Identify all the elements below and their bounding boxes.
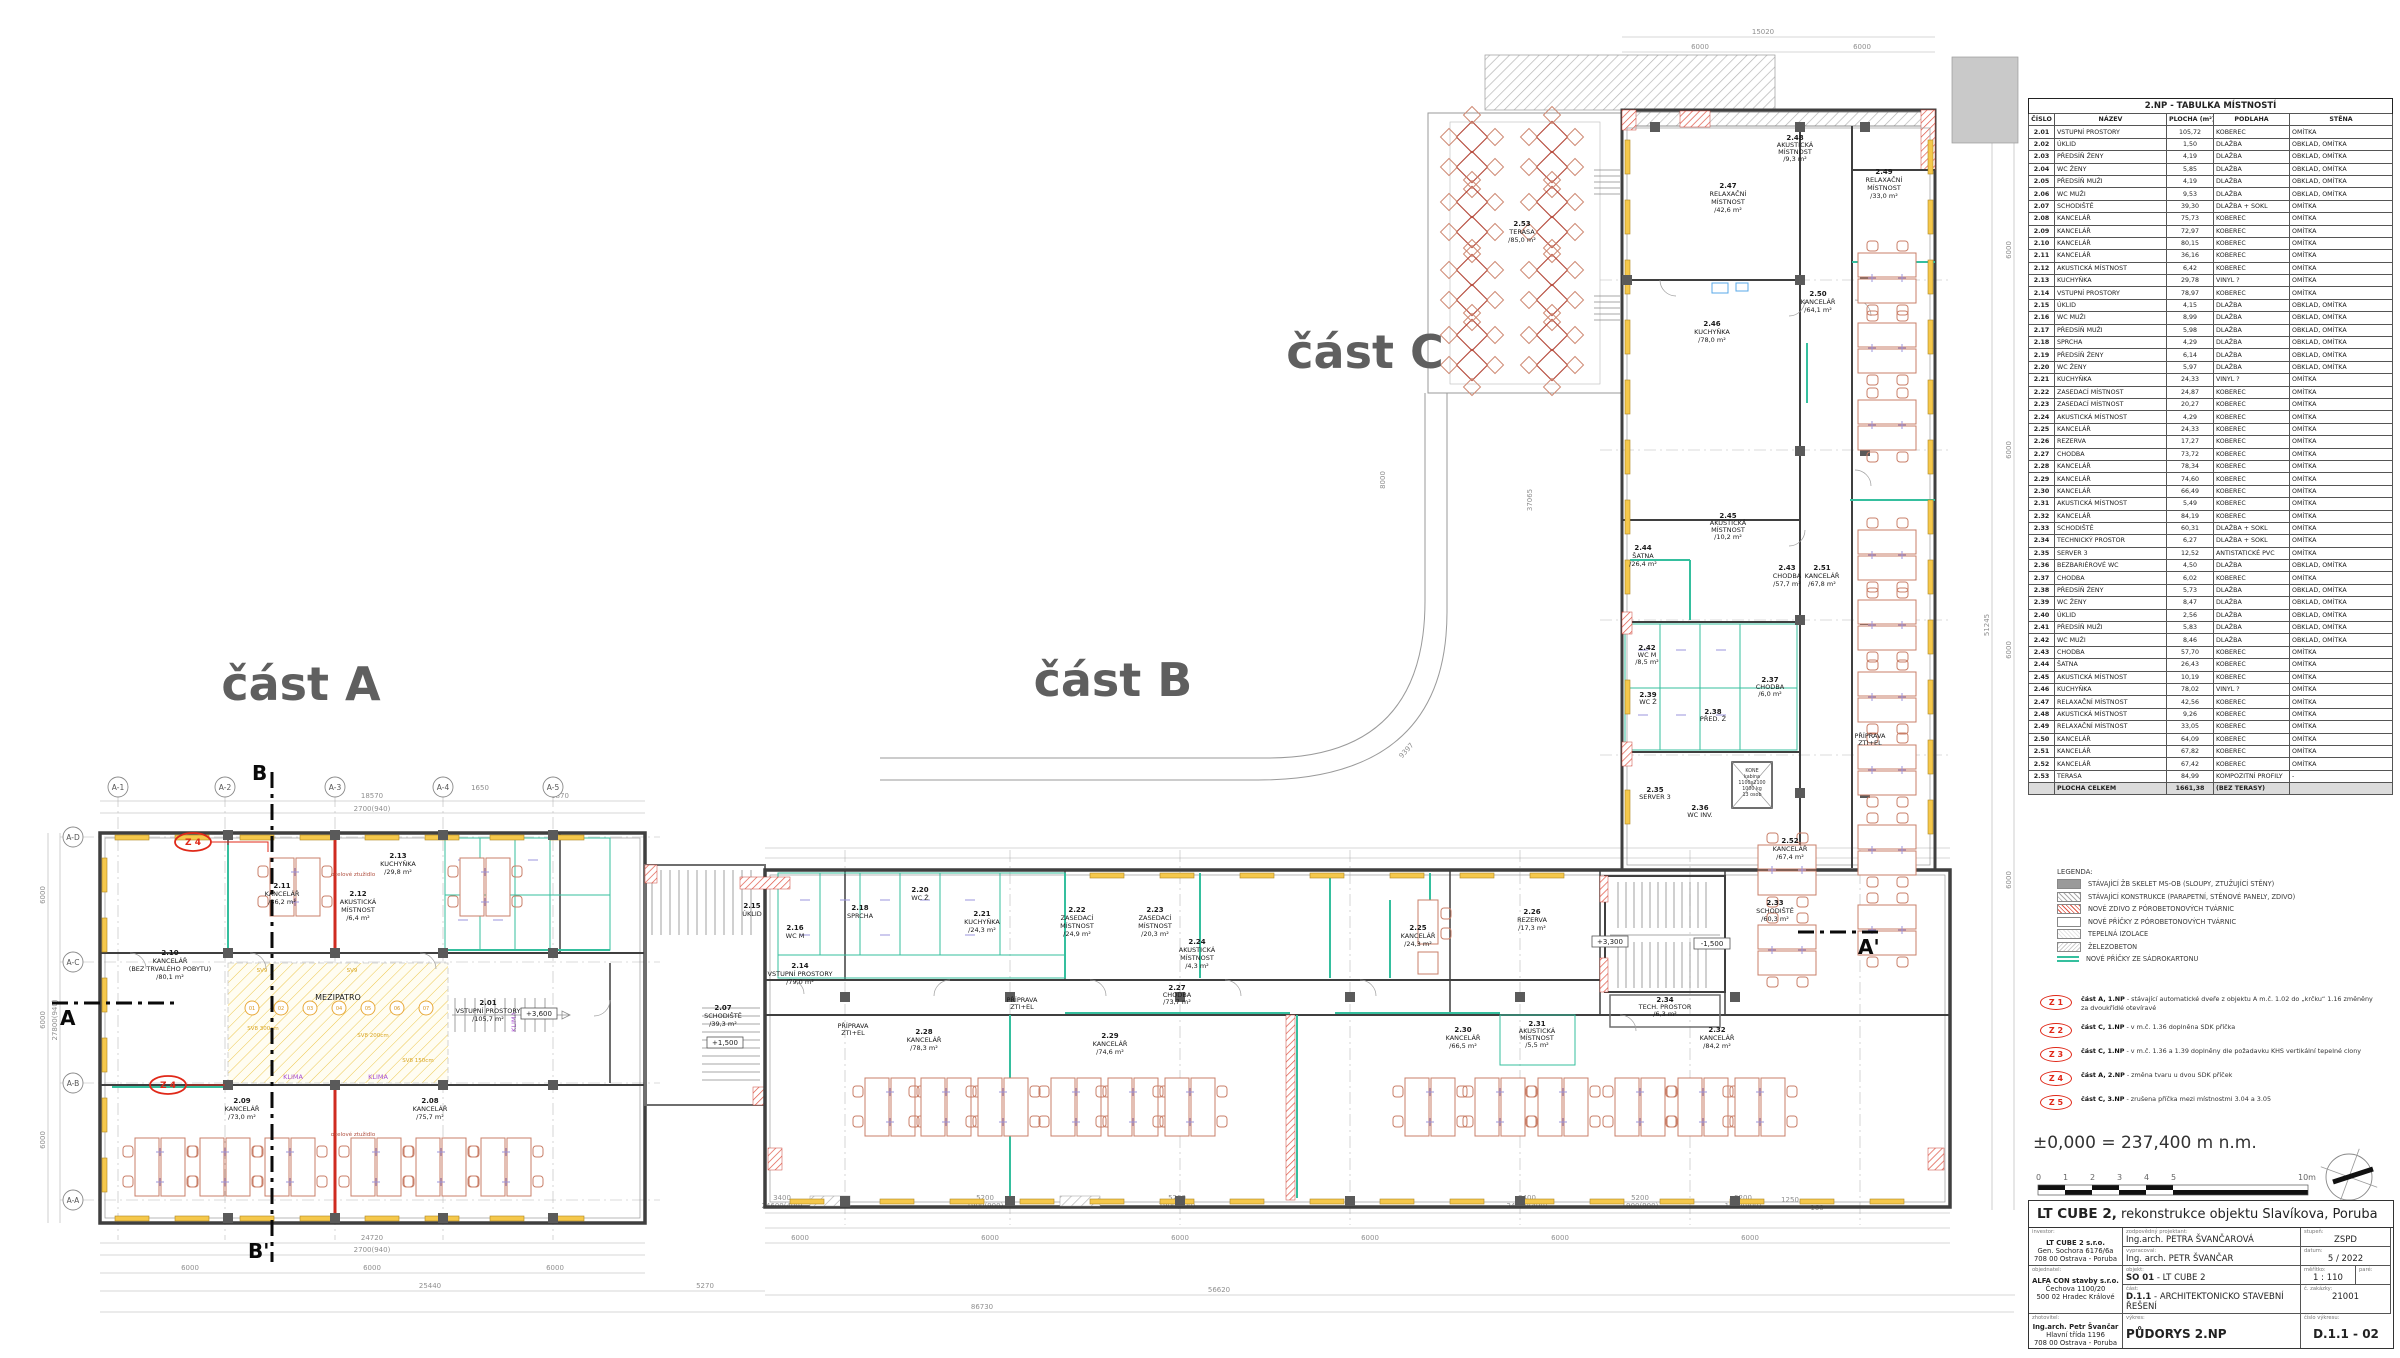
- change-note: Z 3 část C, 1.NP - v m.č. 1.36 a 1.39 do…: [2040, 1047, 2380, 1062]
- order-cell: č. zakázky: 21001: [2301, 1285, 2391, 1314]
- svg-text:A-1: A-1: [112, 783, 125, 792]
- table-row: 2.52KANCELÁŘ67,42KOBERECOMÍTKA: [2029, 758, 2393, 770]
- svg-text:2.48AKUSTICKÁMÍSTNOST/9,3 m²: 2.48AKUSTICKÁMÍSTNOST/9,3 m²: [1777, 134, 1814, 163]
- table-row: 2.11KANCELÁŘ36,16KOBERECOMÍTKA: [2029, 250, 2393, 262]
- svg-text:2.09KANCELÁŘ/73,0 m²: 2.09KANCELÁŘ/73,0 m²: [225, 1097, 260, 1121]
- svg-text:SV8 200cm: SV8 200cm: [357, 1033, 388, 1039]
- part-c-label: část C: [1286, 325, 1443, 379]
- svg-text:2.29KANCELÁŘ/74,6 m²: 2.29KANCELÁŘ/74,6 m²: [1093, 1032, 1128, 1056]
- part-b-label: část B: [1034, 653, 1193, 707]
- table-row: 2.37CHODBA6,02KOBERECOMÍTKA: [2029, 572, 2393, 584]
- drawing-number-cell: číslo výkresu: D.1.1 - 02: [2301, 1314, 2391, 1348]
- investor-cell: investor: LT CUBE 2 s.r.o. Gen. Sochora …: [2029, 1228, 2123, 1266]
- svg-text:MEZIPATRO: MEZIPATRO: [315, 993, 361, 1002]
- legend-swatch-existing: [2057, 892, 2081, 902]
- svg-text:6000: 6000: [1691, 43, 1709, 51]
- svg-text:A-B: A-B: [67, 1079, 80, 1088]
- svg-text:0: 0: [2036, 1173, 2041, 1182]
- svg-text:PŘÍPRAVAZTI+EL: PŘÍPRAVAZTI+EL: [1854, 731, 1886, 747]
- svg-text:51245: 51245: [1983, 614, 1991, 636]
- svg-text:-1,500: -1,500: [1701, 940, 1724, 948]
- svg-text:ocelové ztužidlo: ocelové ztužidlo: [331, 871, 376, 878]
- title-block: LT CUBE 2, rekonstrukce objektu Slavíkov…: [2028, 1200, 2394, 1349]
- svg-text:05: 05: [365, 1006, 371, 1012]
- table-row: 2.24AKUSTICKÁ MÍSTNOST4,29KOBERECOMÍTKA: [2029, 411, 2393, 423]
- svg-text:8000: 8000: [1379, 471, 1387, 489]
- svg-text:KLIMA: KLIMA: [368, 1073, 388, 1081]
- legend: LEGENDA: STÁVAJÍCÍ ŽB SKELET MS-OB (SLOU…: [2057, 868, 2387, 965]
- existing-building-block: [1952, 57, 2018, 143]
- svg-text:2.08KANCELÁŘ/75,7 m²: 2.08KANCELÁŘ/75,7 m²: [413, 1097, 448, 1121]
- table-row: 2.31AKUSTICKÁ MÍSTNOST5,49KOBERECOMÍTKA: [2029, 498, 2393, 510]
- table-row: 2.26REZERVA17,27KOBERECOMÍTKA: [2029, 436, 2393, 448]
- svg-text:2.24AKUSTICKÁMÍSTNOST/4,3 m²: 2.24AKUSTICKÁMÍSTNOST/4,3 m²: [1179, 938, 1216, 970]
- table-row: 2.12AKUSTICKÁ MÍSTNOST6,42KOBERECOMÍTKA: [2029, 262, 2393, 274]
- room-table: 2.NP - TABULKA MÍSTNOSTÍ ČÍSLO NÁZEV PLO…: [2028, 98, 2392, 795]
- table-row: 2.39WC ŽENY8,47DLAŽBAOBKLAD, OMÍTKA: [2029, 597, 2393, 609]
- table-row: 2.14VSTUPNÍ PROSTORY78,97KOBERECOMÍTKA: [2029, 287, 2393, 299]
- svg-text:6000: 6000: [181, 1264, 199, 1272]
- stage-cell: stupeň: ZSPD: [2301, 1228, 2391, 1247]
- staircase-2-33: [1600, 876, 1725, 992]
- svg-text:2.15ÚKLID: 2.15ÚKLID: [742, 902, 762, 918]
- part-a-label: část A: [221, 657, 381, 711]
- table-row: 2.15ÚKLID4,15DLAŽBAOBKLAD, OMÍTKA: [2029, 299, 2393, 311]
- svg-text:2.43CHODBA/57,7 m²: 2.43CHODBA/57,7 m²: [1773, 564, 1802, 588]
- svg-text:37065: 37065: [1526, 489, 1534, 511]
- table-row: 2.23ZASEDACÍ MÍSTNOST20,27KOBERECOMÍTKA: [2029, 398, 2393, 410]
- table-row: 2.29KANCELÁŘ74,60KOBERECOMÍTKA: [2029, 473, 2393, 485]
- elevation-note: ±0,000 = 237,400 m n.m.: [2033, 1133, 2257, 1153]
- svg-text:10m: 10m: [2298, 1173, 2316, 1182]
- table-row: 2.42WC MUŽI8,46DLAŽBAOBKLAD, OMÍTKA: [2029, 634, 2393, 646]
- table-row: 2.49RELAXAČNÍ MÍSTNOST33,05KOBERECOMÍTKA: [2029, 721, 2393, 733]
- legend-swatch-reinforced-concrete: [2057, 942, 2081, 952]
- legend-label: STÁVAJÍCÍ KONSTRUKCE (PARAPETNÍ, STĚNOVÉ…: [2088, 893, 2295, 901]
- svg-text:2.35SERVER 3: 2.35SERVER 3: [1639, 786, 1671, 801]
- table-row: 2.17PŘEDSÍŇ MUŽI5,98DLAŽBAOBKLAD, OMÍTKA: [2029, 324, 2393, 336]
- svg-text:A: A: [60, 1006, 76, 1030]
- legend-label: NOVÉ PŘÍČKY Z PÓROBETONOVÝCH TVÁRNIC: [2088, 918, 2236, 926]
- svg-text:6000: 6000: [2005, 441, 2013, 459]
- svg-text:6000: 6000: [1741, 1234, 1759, 1242]
- svg-text:2.12AKUSTICKÁMÍSTNOST/6,4 m²: 2.12AKUSTICKÁMÍSTNOST/6,4 m²: [340, 890, 377, 922]
- room-table-header: ČÍSLO NÁZEV PLOCHA (m²) PODLAHA STĚNA: [2029, 114, 2393, 126]
- svg-text:A-2: A-2: [219, 783, 232, 792]
- legend-label: NOVÉ ZDIVO Z PÓROBETONOVÝCH TVÁRNIC: [2088, 905, 2234, 913]
- svg-text:24720: 24720: [361, 1234, 383, 1242]
- svg-text:2.45AKUSTICKÁMÍSTNOST/10,2 m²: 2.45AKUSTICKÁMÍSTNOST/10,2 m²: [1710, 512, 1747, 541]
- change-note: Z 5 část C, 3.NP - zrušena příčka mezi m…: [2040, 1095, 2380, 1110]
- road-edge: [880, 393, 1447, 780]
- svg-text:6000: 6000: [1551, 1234, 1569, 1242]
- table-row: 2.19PŘEDSÍŇ ŽENY6,14DLAŽBAOBKLAD, OMÍTKA: [2029, 349, 2393, 361]
- new-masonry-pier: [1286, 1015, 1295, 1200]
- svg-text:+3,600: +3,600: [526, 1010, 552, 1018]
- table-row: 2.04WC ŽENY5,85DLAŽBAOBKLAD, OMÍTKA: [2029, 163, 2393, 175]
- svg-text:6000: 6000: [791, 1234, 809, 1242]
- svg-text:Z 4: Z 4: [160, 1081, 176, 1091]
- legend-label: NOVÉ PŘÍČKY ZE SÁDROKARTONU: [2086, 955, 2198, 963]
- scale-cell: měřítko: 1 : 110 paré:: [2301, 1266, 2391, 1285]
- svg-text:27800(940): 27800(940): [51, 999, 59, 1040]
- svg-text:07: 07: [423, 1006, 429, 1012]
- table-row: 2.45AKUSTICKÁ MÍSTNOST10,19KOBERECOMÍTKA: [2029, 671, 2393, 683]
- svg-text:+3,300: +3,300: [1597, 938, 1623, 946]
- svg-text:2.16WC M: 2.16WC M: [786, 924, 805, 940]
- table-row: 2.08KANCELÁŘ75,73KOBERECOMÍTKA: [2029, 213, 2393, 225]
- svg-text:SV9: SV9: [347, 968, 358, 974]
- svg-text:86730: 86730: [971, 1303, 993, 1311]
- legend-label: TEPELNÁ IZOLACE: [2088, 930, 2148, 938]
- svg-text:1100x2100: 1100x2100: [1738, 780, 1765, 786]
- table-row: 2.41PŘEDSÍŇ MUŽI5,83DLAŽBAOBKLAD, OMÍTKA: [2029, 622, 2393, 634]
- table-row: 2.30KANCELÁŘ66,49KOBERECOMÍTKA: [2029, 485, 2393, 497]
- svg-text:13 osob: 13 osob: [1742, 792, 1761, 798]
- table-row: 2.33SCHODIŠTĚ60,31DLAŽBA + SOKLOMÍTKA: [2029, 522, 2393, 534]
- svg-text:B: B: [252, 761, 267, 785]
- svg-text:PŘÍPRAVAZTI+EL: PŘÍPRAVAZTI+EL: [837, 1021, 869, 1037]
- scale-bar: 0 1 2 3 4 5 10m: [2036, 1173, 2316, 1195]
- svg-text:2.33SCHODIŠTĚ/60,3 m²: 2.33SCHODIŠTĚ/60,3 m²: [1756, 899, 1794, 923]
- svg-text:2.32KANCELÁŘ/84,2 m²: 2.32KANCELÁŘ/84,2 m²: [1700, 1026, 1735, 1050]
- svg-text:2.23ZASEDACÍMÍSTNOST/20,3 m²: 2.23ZASEDACÍMÍSTNOST/20,3 m²: [1138, 906, 1172, 938]
- table-row: 2.09KANCELÁŘ72,97KOBERECOMÍTKA: [2029, 225, 2393, 237]
- table-row: 2.07SCHODIŠTĚ39,30DLAŽBA + SOKLOMÍTKA: [2029, 200, 2393, 212]
- table-row: 2.05PŘEDSÍŇ MUŽI4,19DLAŽBAOBKLAD, OMÍTKA: [2029, 175, 2393, 187]
- change-bubble-z5: Z 5: [2040, 1095, 2072, 1110]
- existing-structure-hatch: [1485, 55, 1775, 110]
- elevator: KONE kabina 1100x2100 1000 kg 13 osob: [1732, 762, 1772, 808]
- svg-text:A-4: A-4: [437, 783, 450, 792]
- legend-label: ŽELEZOBETON: [2088, 943, 2137, 951]
- svg-text:1000 kg: 1000 kg: [1742, 786, 1762, 792]
- svg-text:2.49RELAXAČNÍMÍSTNOST/33,0 m²: 2.49RELAXAČNÍMÍSTNOST/33,0 m²: [1866, 168, 1903, 200]
- svg-text:04: 04: [336, 1006, 342, 1012]
- svg-text:A': A': [1858, 935, 1880, 959]
- svg-text:6000: 6000: [2005, 641, 2013, 659]
- table-row: 2.40ÚKLID2,56DLAŽBAOBKLAD, OMÍTKA: [2029, 609, 2393, 621]
- svg-text:A-A: A-A: [67, 1196, 81, 1205]
- table-row: 2.34TECHNICKÝ PROSTOR6,27DLAŽBA + SOKLOM…: [2029, 535, 2393, 547]
- svg-text:2.31AKUSTICKÁMÍSTNOST/5,5 m²: 2.31AKUSTICKÁMÍSTNOST/5,5 m²: [1519, 1020, 1556, 1049]
- svg-text:6000: 6000: [39, 886, 47, 904]
- svg-text:SV8 150cm: SV8 150cm: [402, 1058, 433, 1064]
- table-row: 2.01VSTUPNÍ PROSTORY105,72KOBERECOMÍTKA: [2029, 126, 2393, 138]
- svg-text:3400: 3400: [773, 1194, 791, 1202]
- svg-text:ocelové ztužidlo: ocelové ztužidlo: [331, 1131, 376, 1138]
- change-bubble-z2: Z 2: [2040, 1023, 2072, 1038]
- svg-text:2.38PŘED. Ž: 2.38PŘED. Ž: [1700, 708, 1727, 723]
- svg-text:6000: 6000: [1853, 43, 1871, 51]
- svg-text:2.46KUCHYŇKA/78,0 m²: 2.46KUCHYŇKA/78,0 m²: [1694, 320, 1730, 344]
- table-row: 2.44ŠATNA26,43KOBERECOMÍTKA: [2029, 659, 2393, 671]
- svg-text:A-5: A-5: [547, 783, 560, 792]
- svg-text:6000: 6000: [981, 1234, 999, 1242]
- svg-text:5200: 5200: [1631, 1194, 1649, 1202]
- legend-swatch-drywall: [2057, 956, 2079, 962]
- table-row: 2.03PŘEDSÍŇ ŽENY4,19DLAŽBAOBKLAD, OMÍTKA: [2029, 151, 2393, 163]
- table-row: 2.35SERVER 312,52ANTISTATICKÉ PVCOMÍTKA: [2029, 547, 2393, 559]
- svg-text:2.30KANCELÁŘ/66,5 m²: 2.30KANCELÁŘ/66,5 m²: [1446, 1026, 1481, 1050]
- table-row: 2.47RELAXAČNÍ MÍSTNOST42,56KOBERECOMÍTKA: [2029, 696, 2393, 708]
- change-bubble-z3: Z 3: [2040, 1047, 2072, 1062]
- part-cell: část: D.1.1 - ARCHITEKTONICKO STAVEBNÍ Ř…: [2123, 1285, 2301, 1314]
- designer-cell: zodpovědný projektant: Ing.arch. PETRA Š…: [2123, 1228, 2301, 1247]
- table-row: 2.27CHODBA73,72KOBERECOMÍTKA: [2029, 448, 2393, 460]
- table-row: 2.13KUCHYŇKA29,78VINYL ?OMÍTKA: [2029, 275, 2393, 287]
- svg-text:2.51KANCELÁŘ/67,8 m²: 2.51KANCELÁŘ/67,8 m²: [1805, 564, 1840, 588]
- svg-text:A-D: A-D: [66, 833, 80, 842]
- table-row: 2.25KANCELÁŘ24,33KOBERECOMÍTKA: [2029, 423, 2393, 435]
- connector-a-b: [645, 865, 765, 1105]
- svg-text:B': B': [248, 1239, 269, 1263]
- table-row: 2.32KANCELÁŘ84,19KOBERECOMÍTKA: [2029, 510, 2393, 522]
- svg-text:4: 4: [2144, 1173, 2149, 1182]
- svg-text:Z 4: Z 4: [185, 838, 201, 848]
- svg-text:2700(940): 2700(940): [354, 1246, 391, 1254]
- legend-swatch-zb-skeleton: [2057, 879, 2081, 889]
- svg-text:01: 01: [249, 1006, 255, 1012]
- svg-text:KONE: KONE: [1745, 768, 1758, 774]
- svg-text:2.53TERASA/85,0 m²: 2.53TERASA/85,0 m²: [1508, 220, 1536, 244]
- svg-text:2.26REZERVA/17,3 m²: 2.26REZERVA/17,3 m²: [1517, 908, 1547, 932]
- table-row: 2.18SPRCHA4,29DLAŽBAOBKLAD, OMÍTKA: [2029, 337, 2393, 349]
- svg-text:PŘÍPRAVAZTI+EL: PŘÍPRAVAZTI+EL: [1006, 995, 1038, 1011]
- svg-text:A-3: A-3: [329, 783, 342, 792]
- drawing-name-cell: výkres: PŮDORYS 2.NP: [2123, 1314, 2301, 1348]
- svg-text:2.28KANCELÁŘ/78,3 m²: 2.28KANCELÁŘ/78,3 m²: [907, 1028, 942, 1052]
- legend-title: LEGENDA:: [2057, 868, 2387, 876]
- table-row: 2.28KANCELÁŘ78,34KOBERECOMÍTKA: [2029, 460, 2393, 472]
- svg-text:25440: 25440: [419, 1282, 441, 1290]
- change-notes: Z 1 část A, 1.NP - stávající automatické…: [2040, 995, 2380, 1119]
- terrace-outline: [1428, 113, 1622, 393]
- object-cell: objekt: SO 01 - LT CUBE 2: [2123, 1266, 2301, 1285]
- svg-text:56620: 56620: [1208, 1286, 1230, 1294]
- table-row: 2.36BEZBARIÉROVÉ WC4,50DLAŽBAOBKLAD, OMÍ…: [2029, 560, 2393, 572]
- svg-text:9397: 9397: [1398, 741, 1416, 760]
- legend-label: STÁVAJÍCÍ ŽB SKELET MS-OB (SLOUPY, ZTUŽU…: [2088, 880, 2274, 888]
- table-row: 2.20WC ŽENY5,97DLAŽBAOBKLAD, OMÍTKA: [2029, 361, 2393, 373]
- svg-text:2.27CHODBA/73,7 m²: 2.27CHODBA/73,7 m²: [1163, 984, 1192, 1006]
- floor-plan-canvas: 18570 2700(940) 6870 1650 27800(940) 600…: [0, 0, 2400, 1358]
- top-wall-hatch: [1624, 112, 1933, 126]
- legend-swatch-new-masonry: [2057, 904, 2081, 914]
- svg-text:5270: 5270: [696, 1282, 714, 1290]
- svg-text:6000: 6000: [2005, 871, 2013, 889]
- room-table-title: 2.NP - TABULKA MÍSTNOSTÍ: [2029, 99, 2393, 114]
- svg-text:6000: 6000: [546, 1264, 564, 1272]
- svg-text:2.44ŠATNA/26,4 m²: 2.44ŠATNA/26,4 m²: [1629, 544, 1657, 568]
- svg-text:+1,500: +1,500: [712, 1039, 738, 1047]
- part-a: 01 02 03 04 05 06 07 SV9 SV9 SV8 300cm S…: [100, 830, 645, 1223]
- svg-text:2.20WC Ž: 2.20WC Ž: [911, 886, 929, 902]
- change-note: Z 1 část A, 1.NP - stávající automatické…: [2040, 995, 2380, 1014]
- date-cell: datum: 5 / 2022: [2301, 1247, 2391, 1266]
- svg-text:2.13KUCHYŇKA/29,8 m²: 2.13KUCHYŇKA/29,8 m²: [380, 852, 416, 876]
- table-row: 2.53TERASA84,99KOMPOZITNÍ PROFILY-: [2029, 770, 2393, 782]
- table-row: 2.02ÚKLID1,50DLAŽBAOBKLAD, OMÍTKA: [2029, 138, 2393, 150]
- svg-text:2.36WC INV.: 2.36WC INV.: [1687, 804, 1713, 819]
- change-note: Z 2 část C, 1.NP - v m.č. 1.36 doplněna …: [2040, 1023, 2380, 1038]
- svg-text:6000: 6000: [363, 1264, 381, 1272]
- svg-text:03: 03: [307, 1006, 313, 1012]
- svg-text:1250: 1250: [1781, 1196, 1799, 1204]
- table-row: 2.06WC MUŽI9,53DLAŽBAOBKLAD, OMÍTKA: [2029, 188, 2393, 200]
- svg-text:kabina: kabina: [1744, 774, 1760, 780]
- contractor-cell: zhotovitel: Ing.arch. Petr Švančar Hlavn…: [2029, 1314, 2123, 1348]
- svg-text:2.14VSTUPNÍ PROSTORY/79,0 m²: 2.14VSTUPNÍ PROSTORY/79,0 m²: [768, 962, 833, 986]
- svg-text:6000: 6000: [1361, 1234, 1379, 1242]
- table-row: 2.46KUCHYŇKA78,02VINYL ?OMÍTKA: [2029, 683, 2393, 695]
- table-row: 2.51KANCELÁŘ67,82KOBERECOMÍTKA: [2029, 745, 2393, 757]
- svg-text:6000: 6000: [2005, 241, 2013, 259]
- svg-text:06: 06: [394, 1006, 400, 1012]
- table-row: 2.21KUCHYŇKA24,33VINYL ?OMÍTKA: [2029, 374, 2393, 386]
- svg-text:2.47RELAXAČNÍMÍSTNOST/42,6 m²: 2.47RELAXAČNÍMÍSTNOST/42,6 m²: [1710, 182, 1747, 214]
- table-row: 2.38PŘEDSÍŇ ŽENY5,73DLAŽBAOBKLAD, OMÍTKA: [2029, 584, 2393, 596]
- mezzanine-hatch: [228, 963, 448, 1083]
- svg-text:1: 1: [2063, 1173, 2068, 1182]
- svg-text:2: 2: [2090, 1173, 2095, 1182]
- svg-text:2.50KANCELÁŘ/64,1 m²: 2.50KANCELÁŘ/64,1 m²: [1801, 290, 1836, 314]
- project-title: LT CUBE 2, rekonstrukce objektu Slavíkov…: [2029, 1201, 2393, 1228]
- svg-text:18570: 18570: [361, 792, 383, 800]
- svg-text:6000: 6000: [39, 1011, 47, 1029]
- change-bubble-z4: Z 4: [2040, 1071, 2072, 1086]
- svg-text:2700(940): 2700(940): [354, 805, 391, 813]
- svg-text:15020: 15020: [1752, 28, 1774, 36]
- svg-text:SV8 300cm: SV8 300cm: [247, 1026, 278, 1032]
- table-row: 2.10KANCELÁŘ80,15KOBERECOMÍTKA: [2029, 237, 2393, 249]
- table-row: 2.43CHODBA57,70KOBERECOMÍTKA: [2029, 646, 2393, 658]
- drawnby-cell: vypracoval: Ing. arch. PETR ŠVANČAR: [2123, 1247, 2301, 1266]
- change-note: Z 4 část A, 2.NP - změna tvaru u dvou SD…: [2040, 1071, 2380, 1086]
- legend-swatch-new-partitions: [2057, 917, 2081, 927]
- svg-text:1650: 1650: [471, 784, 489, 792]
- svg-text:2.18SPRCHA: 2.18SPRCHA: [847, 904, 874, 920]
- table-row: 2.22ZASEDACÍ MÍSTNOST24,87KOBERECOMÍTKA: [2029, 386, 2393, 398]
- svg-text:2.37CHODBA/6,0 m²: 2.37CHODBA/6,0 m²: [1756, 676, 1785, 698]
- svg-text:02: 02: [278, 1006, 284, 1012]
- table-row: 2.16WC MUŽI8,99DLAŽBAOBKLAD, OMÍTKA: [2029, 312, 2393, 324]
- svg-text:6000: 6000: [1171, 1234, 1189, 1242]
- svg-text:KLIMA: KLIMA: [283, 1073, 303, 1081]
- table-row: 2.48AKUSTICKÁ MÍSTNOST9,26KOBERECOMÍTKA: [2029, 708, 2393, 720]
- room-table-total-row: PLOCHA CELKEM 1661,38 (BEZ TERASY): [2029, 783, 2393, 795]
- change-bubble-z1: Z 1: [2040, 995, 2072, 1010]
- client-cell: objednatel: ALFA CON stavby s.r.o. Čecho…: [2029, 1266, 2123, 1314]
- svg-text:2.21KUCHYŇKA/24,3 m²: 2.21KUCHYŇKA/24,3 m²: [964, 910, 1000, 934]
- svg-text:2.42WC M/8,5 m²: 2.42WC M/8,5 m²: [1635, 644, 1659, 666]
- svg-text:5: 5: [2171, 1173, 2176, 1182]
- svg-text:2.39WC Ž: 2.39WC Ž: [1639, 691, 1657, 706]
- svg-text:3: 3: [2117, 1173, 2122, 1182]
- svg-text:6000: 6000: [39, 1131, 47, 1149]
- svg-text:A-C: A-C: [67, 958, 80, 967]
- table-row: 2.50KANCELÁŘ64,09KOBERECOMÍTKA: [2029, 733, 2393, 745]
- legend-swatch-insulation: [2057, 929, 2081, 939]
